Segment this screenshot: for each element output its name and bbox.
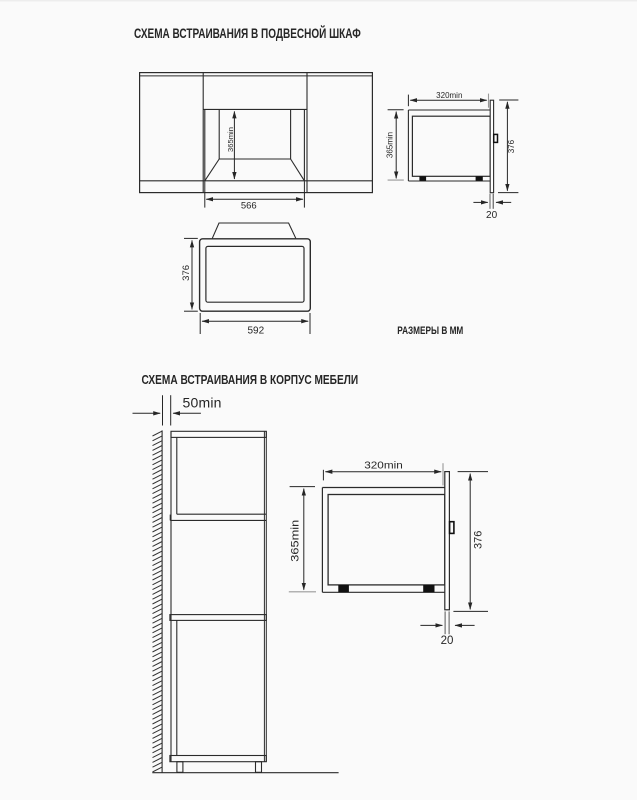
svg-text:50min: 50min [183, 394, 222, 410]
svg-text:365min: 365min [290, 520, 302, 562]
svg-text:320min: 320min [364, 460, 403, 472]
svg-text:365min: 365min [385, 132, 394, 158]
svg-text:320min: 320min [436, 91, 462, 100]
svg-text:20: 20 [486, 210, 498, 221]
svg-text:376: 376 [507, 139, 516, 153]
svg-text:592: 592 [247, 326, 264, 337]
svg-text:РАЗМЕРЫ В ММ: РАЗМЕРЫ В ММ [397, 325, 463, 337]
svg-text:376: 376 [181, 265, 192, 281]
svg-text:365min: 365min [226, 127, 235, 152]
svg-text:20: 20 [441, 635, 454, 647]
svg-text:376: 376 [472, 531, 484, 549]
svg-text:СХЕМА ВСТРАИВАНИЯ В КОРПУС МЕБ: СХЕМА ВСТРАИВАНИЯ В КОРПУС МЕБЕЛИ [142, 372, 359, 387]
svg-text:СХЕМА ВСТРАИВАНИЯ В ПОДВЕСНОЙ: СХЕМА ВСТРАИВАНИЯ В ПОДВЕСНОЙ ШКАФ [134, 24, 361, 41]
svg-text:566: 566 [241, 201, 257, 212]
